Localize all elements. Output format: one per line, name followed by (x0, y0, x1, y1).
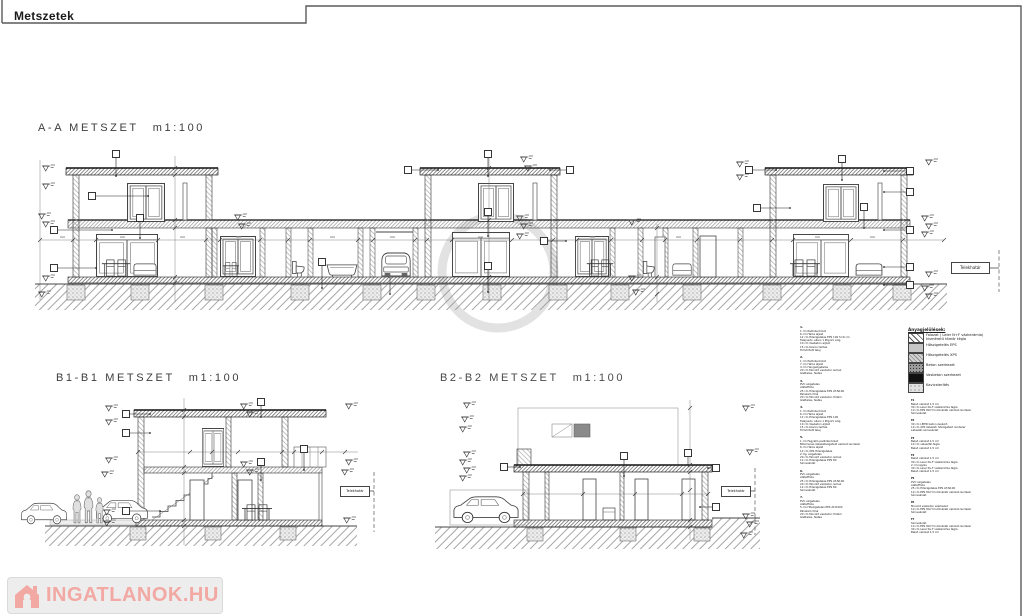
sheet-title: Metszetek (14, 9, 74, 23)
section-a-title: A-A METSZETm1:100 (38, 122, 205, 134)
note-block: 7.PVC szigetelésAlátétfólia5 cm Hősziget… (800, 496, 902, 519)
legend-label: Beton szerkezet (926, 363, 955, 367)
note-line: Glettelés, festés (800, 516, 902, 519)
section-a-scale: m1:100 (153, 122, 205, 134)
note-line: Színvakolat (911, 494, 1017, 497)
layer-notes-column-1: 1.1 cm Padlóburkolat6 cm Hálós aljzat12 … (800, 326, 902, 523)
ingatlanok-watermark: INGATLANOK.HU (7, 577, 223, 614)
note-line: Színvakolat (800, 462, 902, 465)
section-b2-drawing (435, 400, 760, 549)
section-b1-name: B1-B1 METSZET (56, 372, 175, 384)
legend-swatch-xps (908, 353, 924, 363)
section-b1-drawing (21, 398, 374, 546)
note-block: f4Belső vakolat 1,5 cm30 cm Leier N+F vá… (911, 454, 1017, 474)
section-b2-name: B2-B2 METSZET (440, 372, 559, 384)
legend-label: Hőszigetelés XPS (926, 353, 957, 357)
legend-swatch-concrete (908, 363, 924, 373)
legend-label: Hőszigetelés EPS (926, 343, 957, 347)
note-block: 6.PVC szigetelésAlátétfólia25 cm Hőszige… (800, 470, 902, 493)
note-block: 2.1 cm Padlóburkolat7 cm Hálós aljzat4 c… (800, 356, 902, 376)
note-line: Színvakolat (911, 511, 1017, 514)
legend-row: Hőszigetelés XPS (908, 353, 1014, 363)
note-line: Színvakolat (911, 412, 1017, 415)
legend-items: Falazat ( Leier N+F vázkerámia)kisméretű… (908, 333, 1014, 393)
legend-row: Falazat ( Leier N+F vázkerámia)kisméretű… (908, 333, 1014, 343)
note-line: Lábazati színvakolat (911, 429, 1017, 432)
section-a-name: A-A METSZET (38, 122, 139, 134)
note-block: f230 cm LEIER beton zsalukő10 cm XPS láb… (911, 419, 1017, 432)
section-a-drawing (35, 151, 999, 311)
note-block: f6Monolit vasbeton szerkezet10 cm EPS 80… (911, 501, 1017, 514)
legend-row: Vasbeton szerkezet (908, 373, 1014, 383)
legend-swatch-rc (908, 373, 924, 383)
materials-legend: Anyagjelölések: Falazat ( Leier N+F vázk… (908, 327, 1014, 393)
section-b2-title: B2-B2 METSZETm1:100 (440, 372, 625, 384)
legend-swatch-eps (908, 343, 924, 353)
plot-boundary-label-b2: Telekhatár (721, 486, 751, 497)
house-icon (12, 582, 42, 610)
note-block: f3Belső vakolat 1,5 cm10 cm válaszfal té… (911, 437, 1017, 450)
note-line: Tömörített talaj (800, 349, 902, 352)
plot-boundary-label-b1: Telekhatár (340, 486, 370, 497)
legend-row: Kavicsterítés (908, 383, 1014, 393)
drawing-sheet: VI (0, 0, 1024, 616)
note-line: Belső vakolat 1,5 cm (911, 470, 1017, 473)
note-line: Belső vakolat 1,5 cm (911, 531, 1017, 534)
section-b1-scale: m1:100 (189, 372, 241, 384)
note-line: Glettelés, festés (800, 399, 902, 402)
section-drawings: VI (0, 0, 1024, 616)
note-line: Színvakolat (800, 489, 902, 492)
plot-boundary-label-a: Telekhatár (951, 262, 990, 274)
layer-notes-column-2: f1Belső vakolat 1,5 cm30 cm Leier N+F vá… (911, 399, 1017, 539)
ingatlanok-logo-text: INGATLANOK.HU (46, 584, 219, 607)
note-block: 3.PVC szigetelésAlátétfólia25 cm Hőszige… (800, 380, 902, 403)
note-line: Belső vakolat 1,5 cm (911, 447, 1017, 450)
legend-label: Vasbeton szerkezet (926, 373, 961, 377)
note-block: 1.1 cm Padlóburkolat6 cm Hálós aljzat12 … (800, 326, 902, 352)
legend-swatch-brick-hatch (908, 333, 924, 343)
legend-row: Hőszigetelés EPS (908, 343, 1014, 353)
legend-label: Kavicsterítés (926, 383, 949, 387)
legend-label: Falazat ( Leier N+F vázkerámia)kisméretű… (926, 333, 983, 341)
note-line: Glettelés, festés (800, 372, 902, 375)
note-block: f7Színvakolat10 cm EPS 80-H homlokzati v… (911, 518, 1017, 534)
legend-row: Beton szerkezet (908, 363, 1014, 373)
section-b1-title: B1-B1 METSZETm1:100 (56, 372, 241, 384)
note-line: Tömörített talaj (800, 429, 902, 432)
note-block: 5.1 cm Fagyálló padlóburkolatBitumenes l… (800, 436, 902, 465)
note-block: 4.1 cm Padlóburkolat6 cm Hálós aljzat12 … (800, 406, 902, 432)
legend-swatch-gravel (908, 383, 924, 393)
legend-title: Anyagjelölések: (908, 327, 1014, 332)
section-b2-scale: m1:100 (573, 372, 625, 384)
note-block: f5PVC szigetelésAlátétfólia25 cm Hőszige… (911, 477, 1017, 497)
note-block: f1Belső vakolat 1,5 cm30 cm Leier N+F vá… (911, 399, 1017, 415)
